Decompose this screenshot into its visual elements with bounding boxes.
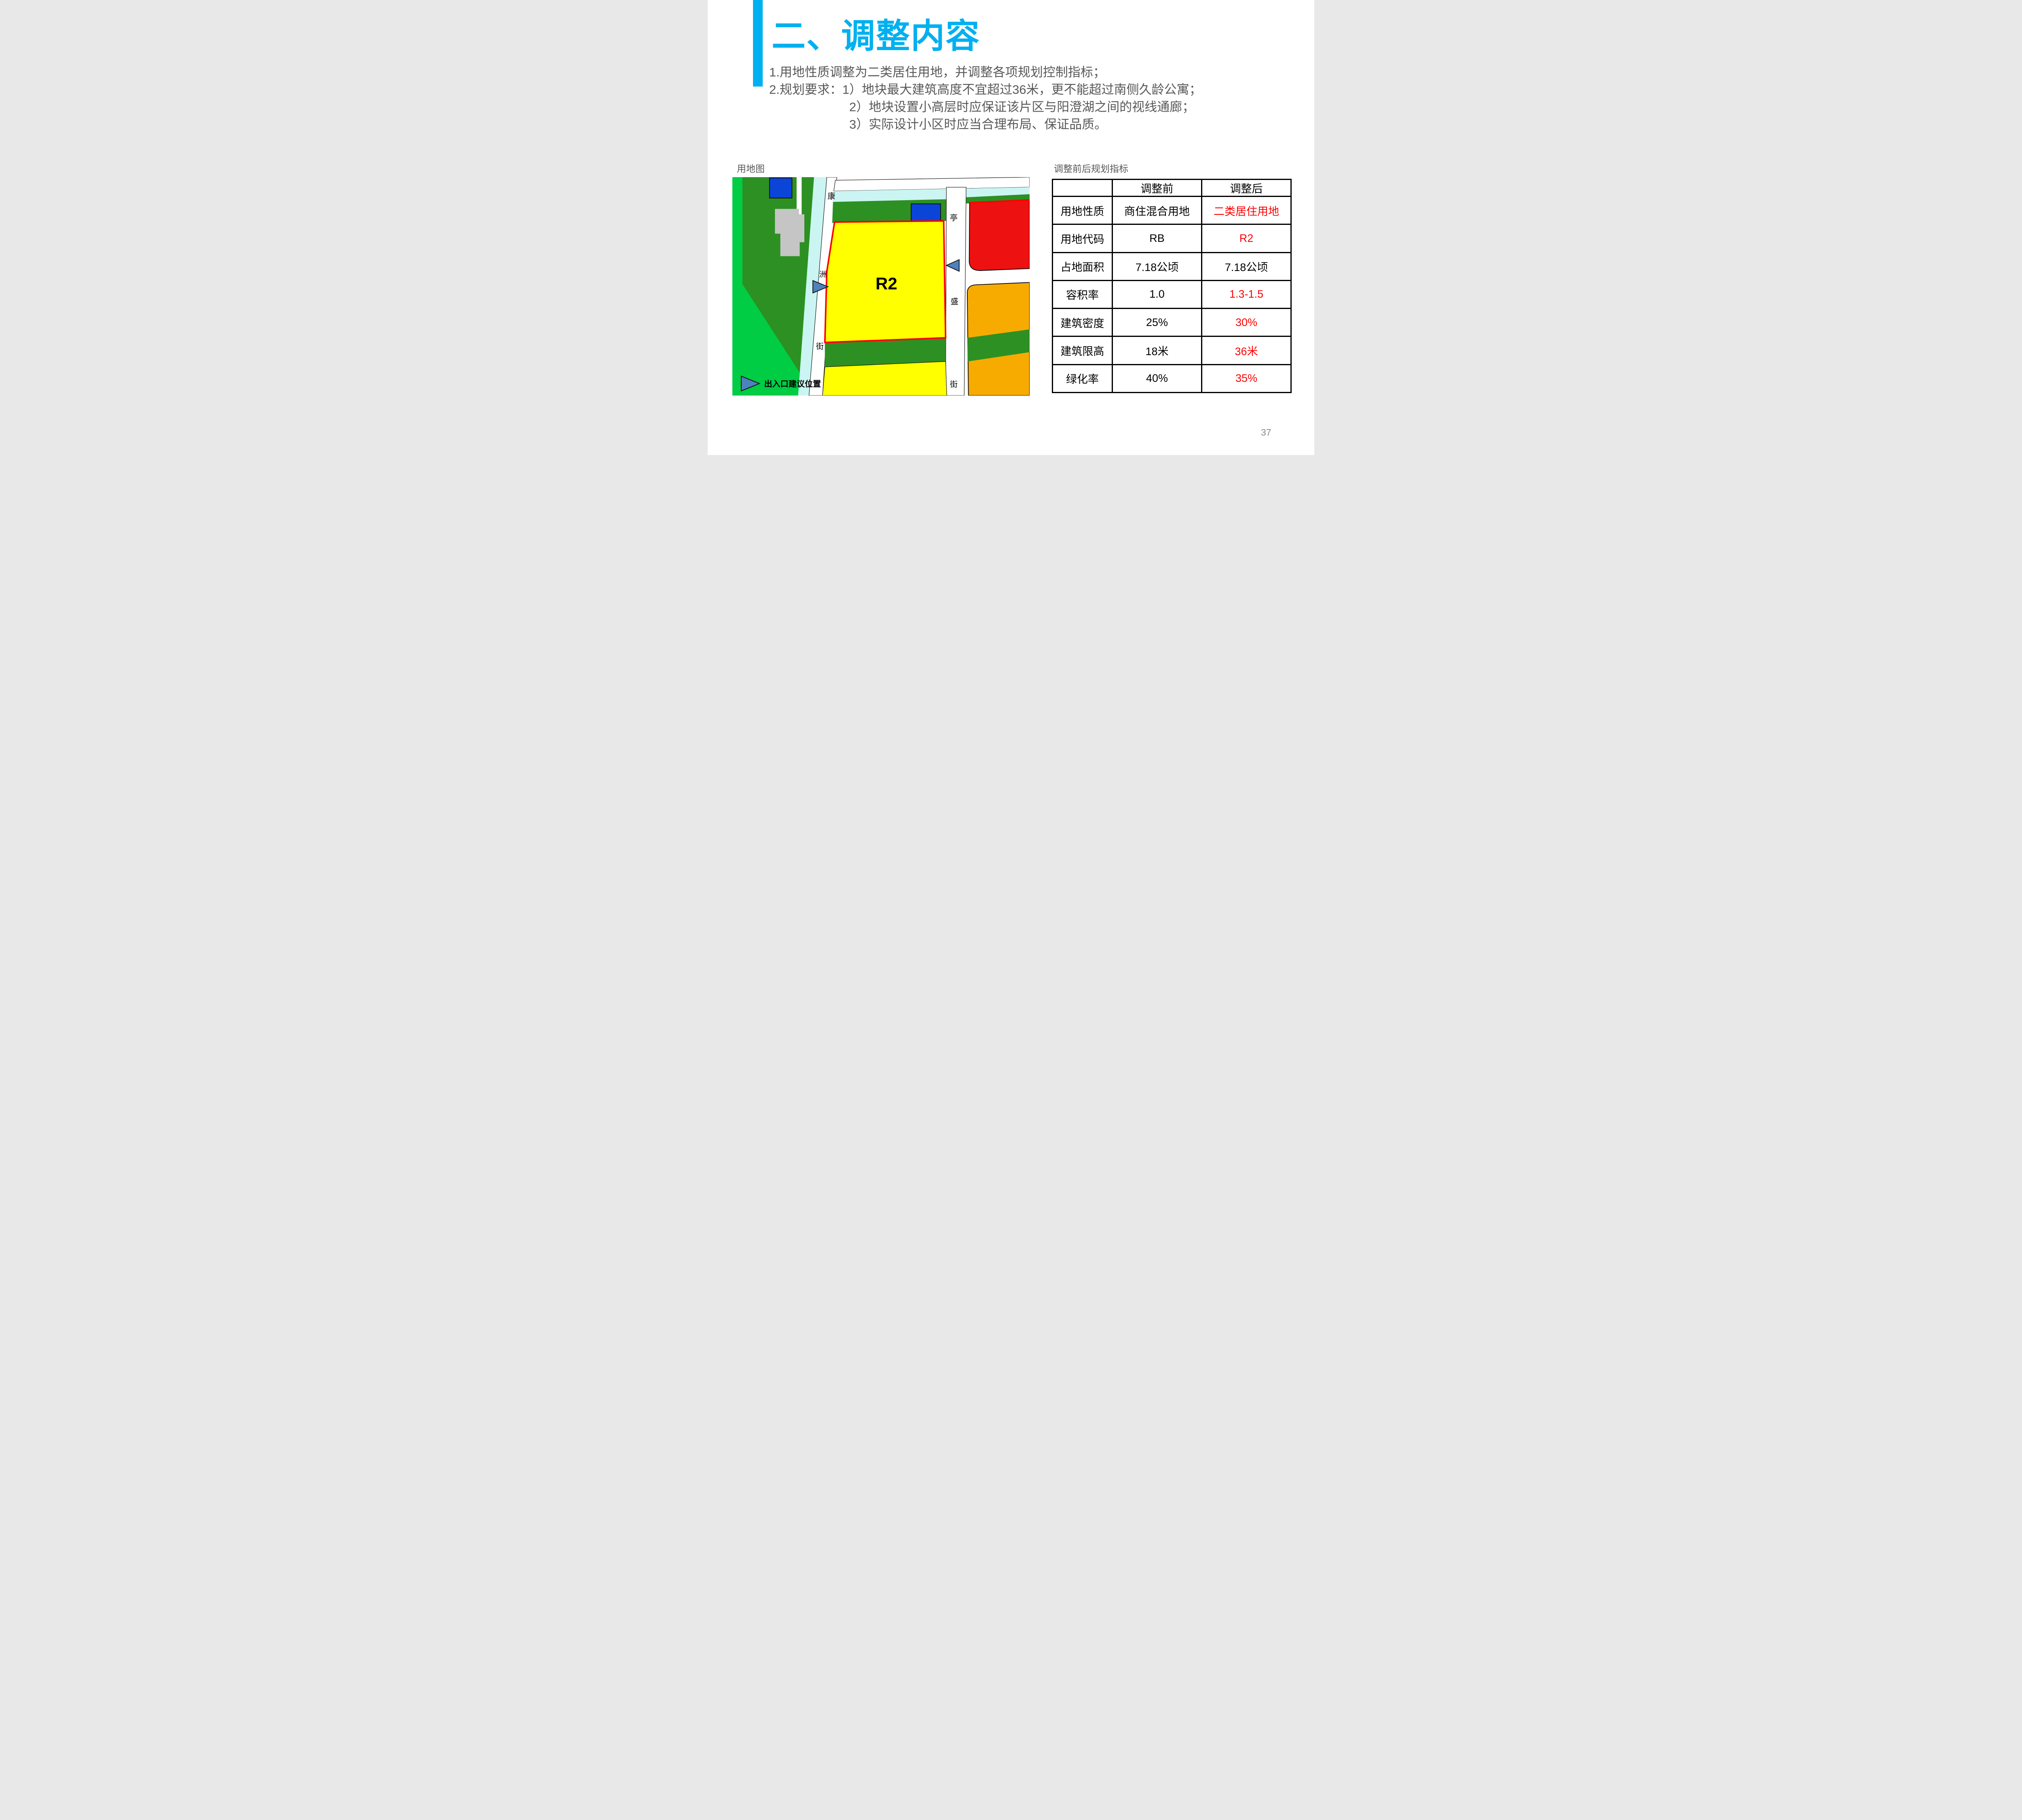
row-label-cell: 占地面积 <box>1053 252 1113 280</box>
header-before-cell: 调整前 <box>1113 180 1202 197</box>
indicators-table: 调整前 调整后 用地性质商住混合用地二类居住用地用地代码RBR2占地面积7.18… <box>1052 179 1292 393</box>
before-value-cell: 1.0 <box>1113 280 1202 308</box>
row-label-cell: 容积率 <box>1053 280 1113 308</box>
after-value-cell: 30% <box>1202 309 1291 336</box>
table-row: 建筑密度25%30% <box>1053 309 1291 336</box>
body-line-4: 3）实际设计小区时应当合理布局、保证品质。 <box>849 117 1107 132</box>
table-body: 用地性质商住混合用地二类居住用地用地代码RBR2占地面积7.18公顷7.18公顷… <box>1053 197 1291 393</box>
map-title: 用地图 <box>737 161 765 175</box>
title-accent-bar <box>753 0 763 87</box>
body-line-3: 2）地块设置小高层时应保证该片区与阳澄湖之间的视线通廊； <box>849 99 1195 114</box>
after-value-cell: 二类居住用地 <box>1202 197 1291 224</box>
header-empty-cell <box>1053 180 1113 197</box>
row-label-cell: 用地代码 <box>1053 224 1113 252</box>
table-row: 用地代码RBR2 <box>1053 224 1291 252</box>
table-row: 用地性质商住混合用地二类居住用地 <box>1053 197 1291 224</box>
after-value-cell: 7.18公顷 <box>1202 252 1291 280</box>
road-west-char-2: 洲 <box>819 271 827 279</box>
header-after-cell: 调整后 <box>1202 180 1291 197</box>
before-value-cell: 商住混合用地 <box>1113 197 1202 224</box>
row-label-cell: 建筑密度 <box>1053 309 1113 336</box>
row-label-cell: 用地性质 <box>1053 197 1113 224</box>
body-line-1: 1.用地性质调整为二类居住用地，并调整各项规划控制指标； <box>769 65 1106 80</box>
before-value-cell: 18米 <box>1113 336 1202 364</box>
table-row: 绿化率40%35% <box>1053 364 1291 392</box>
map-parcel-yellow-south <box>823 362 947 396</box>
road-east-char-2: 盛 <box>951 297 958 306</box>
row-label-cell: 绿化率 <box>1053 364 1113 392</box>
before-value-cell: 25% <box>1113 309 1202 336</box>
page-title: 二、调整内容 <box>772 9 980 58</box>
row-label-cell: 建筑限高 <box>1053 336 1113 364</box>
road-west-char-3: 街 <box>816 342 824 351</box>
after-value-cell: 35% <box>1202 364 1291 392</box>
before-value-cell: 40% <box>1113 364 1202 392</box>
map-water-rect-n <box>911 204 941 221</box>
before-value-cell: 7.18公顷 <box>1113 252 1202 280</box>
road-east-char-1: 亭 <box>950 214 958 222</box>
road-east-char-3: 街 <box>950 380 958 389</box>
after-value-cell: 1.3-1.5 <box>1202 280 1291 308</box>
table-title: 调整前后规划指标 <box>1054 161 1128 175</box>
parcel-r2-label: R2 <box>876 274 897 293</box>
table-row: 建筑限高18米36米 <box>1053 336 1291 364</box>
table-row: 容积率1.01.3-1.5 <box>1053 280 1291 308</box>
map-parcel-red <box>969 200 1030 270</box>
after-value-cell: R2 <box>1202 224 1291 252</box>
page-number: 37 <box>1261 427 1271 438</box>
road-west-char-1: 康 <box>827 192 835 201</box>
table-header-row: 调整前 调整后 <box>1053 180 1291 197</box>
legend-entrance-label: 出入口建议位置 <box>764 379 821 389</box>
land-use-map: R2 康 洲 街 亭 盛 街 出入口建议位置 <box>732 177 1030 396</box>
after-value-cell: 36米 <box>1202 336 1291 364</box>
body-line-2: 2.规划要求：1）地块最大建筑高度不宜超过36米，更不能超过南侧久龄公寓； <box>769 82 1202 97</box>
map-water-rect-nw <box>770 178 792 198</box>
slide: 二、调整内容 1.用地性质调整为二类居住用地，并调整各项规划控制指标； 2.规划… <box>708 0 1314 455</box>
before-value-cell: RB <box>1113 224 1202 252</box>
table-row: 占地面积7.18公顷7.18公顷 <box>1053 252 1291 280</box>
